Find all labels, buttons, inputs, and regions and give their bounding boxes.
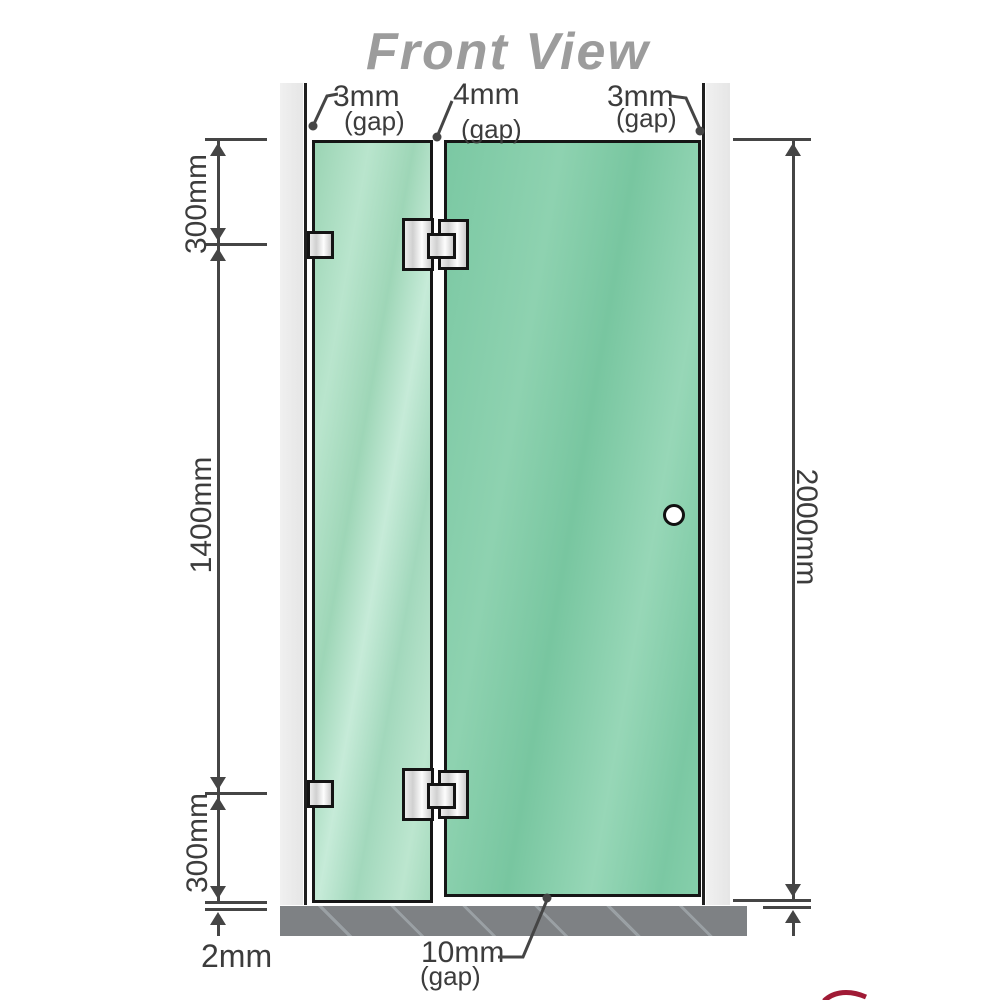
floor-base — [280, 906, 747, 936]
left-wall-post — [280, 83, 303, 905]
leader-line-gap-mid — [437, 101, 452, 137]
arrow-up-icon — [785, 143, 801, 156]
dim-label-1400: 1400mm — [185, 457, 219, 574]
gap-label-mid: 4mm — [453, 78, 520, 112]
door-glass-panel — [444, 140, 701, 897]
leader-dot-icon — [309, 122, 318, 131]
tick-top — [205, 138, 267, 141]
wall-bracket-top — [307, 231, 334, 259]
tick-right-floor — [763, 906, 811, 909]
wall-bracket-bottom — [307, 780, 334, 808]
door-handle-knob — [663, 504, 685, 526]
dim-label-2000: 2000mm — [789, 469, 823, 586]
right-wall-edge-line — [702, 83, 705, 905]
arrow-up-icon — [785, 910, 801, 923]
dim-label-2mm: 2mm — [201, 938, 272, 975]
right-dimension-tail — [792, 921, 795, 936]
tick-bottom-glass — [205, 901, 267, 904]
dim-label-300-bottom: 300mm — [181, 793, 215, 893]
top-hinge-knuckle — [427, 233, 456, 259]
tick-300 — [205, 243, 267, 246]
gap-label-right-sub: (gap) — [616, 103, 677, 134]
tick-floor — [205, 908, 267, 911]
gap-label-bottom-sub: (gap) — [420, 961, 481, 992]
dim-label-300-top: 300mm — [180, 154, 214, 254]
bottom-hinge-knuckle — [427, 783, 456, 809]
diagram-title: Front View — [366, 22, 650, 82]
arrow-down-icon — [785, 884, 801, 897]
right-wall-post — [706, 83, 730, 905]
red-corner-mark — [824, 992, 866, 1000]
gap-label-mid-sub: (gap) — [461, 114, 522, 145]
leader-dot-icon — [433, 133, 442, 142]
arrow-down-icon — [210, 777, 226, 790]
tick-right-bottom — [733, 899, 811, 902]
front-view-diagram: Front View 300mm 1400mm 300mm 2mm 2000m — [0, 0, 1000, 1000]
tick-right-top — [733, 138, 811, 141]
arrow-up-icon — [210, 912, 226, 925]
gap-label-left-sub: (gap) — [344, 106, 405, 137]
